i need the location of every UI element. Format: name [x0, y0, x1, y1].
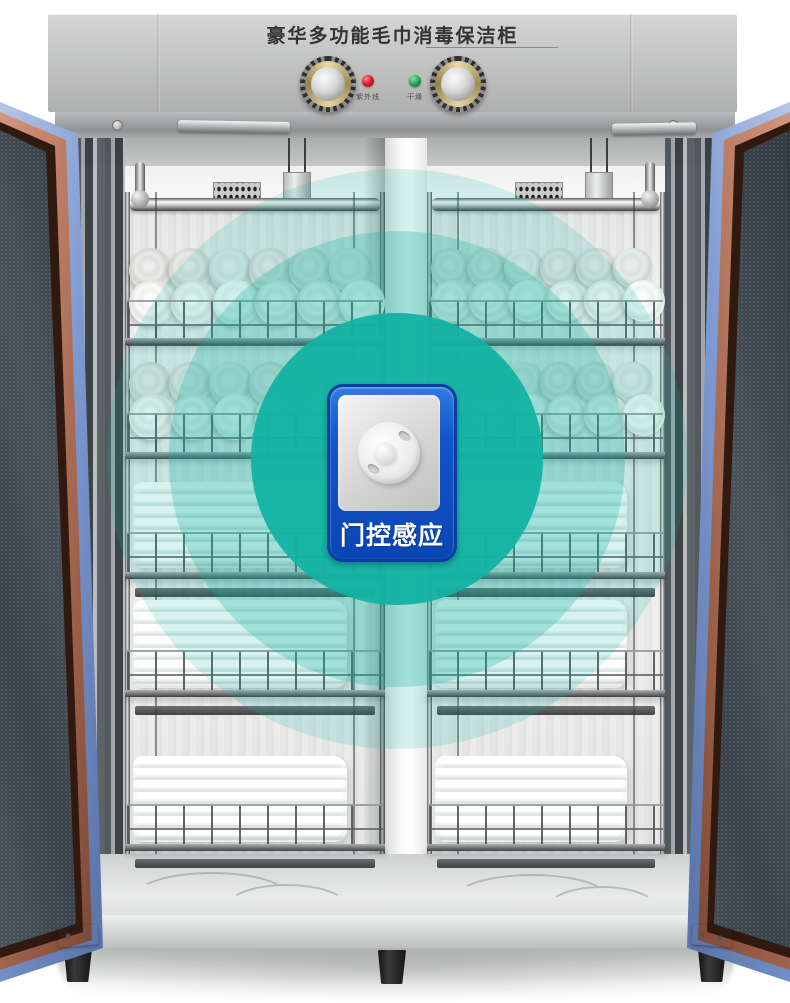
- sensor-panel: [338, 395, 440, 511]
- lamp-holder: [645, 162, 655, 202]
- product-photo: 门控感应 豪华多功能毛巾消毒保洁柜 紫外线 干燥: [0, 0, 790, 1003]
- sensor-button: [374, 442, 396, 464]
- shelf-support-rail: [135, 859, 375, 868]
- dry-indicator-label: 干燥: [391, 92, 439, 102]
- door-sensor-icon: [358, 422, 420, 484]
- sensor-label: 门控感应: [330, 516, 454, 552]
- left-control-knob: [300, 56, 356, 112]
- lamp-wires: [288, 136, 306, 172]
- kick-plate: [78, 915, 712, 948]
- sensor-hole: [397, 429, 412, 443]
- uv-indicator-label: 紫外线: [344, 92, 392, 102]
- right-door-open: [684, 96, 790, 996]
- left-door-open: [0, 96, 106, 996]
- shelf-bar: [427, 844, 665, 851]
- shelf-support-rail: [437, 859, 655, 868]
- screw-icon: [112, 120, 123, 131]
- uv-indicator-light: [362, 75, 374, 87]
- lamp-holder: [135, 162, 145, 202]
- dry-indicator-light: [409, 75, 421, 87]
- sensor-hole: [366, 462, 381, 476]
- top-hinge-arm: [178, 120, 290, 134]
- title-underline: [426, 47, 558, 48]
- door-sensor-badge: 门控感应: [327, 384, 457, 562]
- right-control-knob: [430, 56, 486, 112]
- lamp-wires: [590, 136, 608, 172]
- bottom-door-hinge: [691, 924, 733, 947]
- bottom-door-hinge: [57, 924, 99, 947]
- cabinet-title: 豪华多功能毛巾消毒保洁柜: [48, 21, 737, 48]
- shelf-bar: [125, 844, 385, 851]
